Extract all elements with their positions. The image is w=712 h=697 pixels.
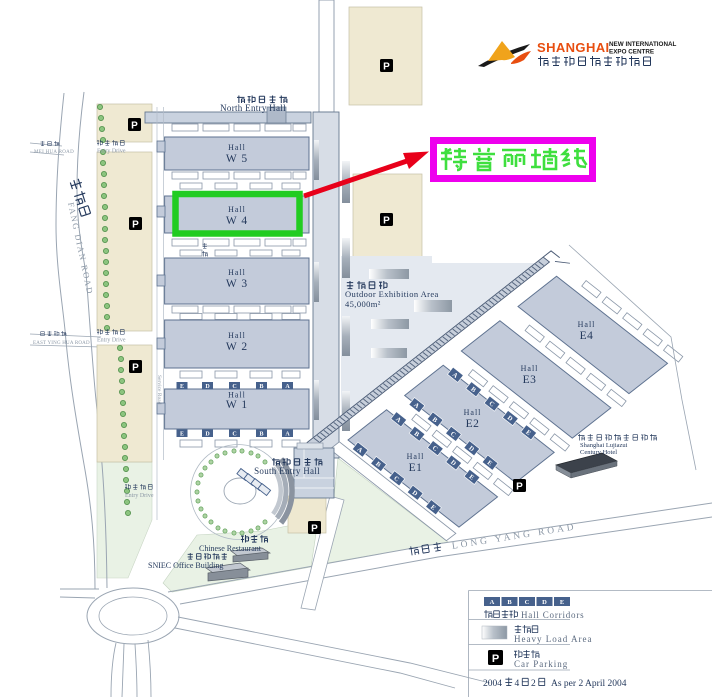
svg-text:Entry Drive: Entry Drive (97, 149, 126, 155)
svg-text:E1: E1 (409, 462, 423, 474)
svg-text:A: A (490, 599, 495, 606)
svg-text:E: E (560, 599, 564, 606)
svg-text:E3: E3 (523, 374, 537, 386)
svg-text:Heavy Load Area: Heavy Load Area (514, 634, 592, 644)
svg-text:South Entry Hall: South Entry Hall (254, 466, 320, 476)
svg-text:D: D (205, 432, 210, 438)
svg-text:A: A (285, 432, 290, 438)
svg-text:Hall: Hall (228, 268, 246, 277)
svg-text:W 2: W 2 (226, 341, 248, 353)
svg-text:Hall: Hall (228, 205, 246, 214)
svg-text:45,000m²: 45,000m² (345, 299, 381, 309)
svg-text:W 3: W 3 (226, 278, 248, 290)
svg-text:Chinese Restaurant: Chinese Restaurant (199, 544, 262, 553)
svg-text:Entry Drive: Entry Drive (97, 338, 126, 344)
svg-text:P: P (492, 653, 499, 665)
svg-text:B: B (259, 432, 263, 438)
svg-text:Hall Corridors: Hall Corridors (521, 610, 584, 620)
svg-text:Outdoor Exhibition Area: Outdoor Exhibition Area (345, 289, 439, 299)
svg-text:B: B (507, 599, 512, 606)
svg-text:C: C (525, 599, 530, 606)
svg-text:EAST YING HUA ROAD: EAST YING HUA ROAD (33, 341, 90, 346)
svg-text:W 1: W 1 (226, 399, 248, 411)
svg-text:Service Road: Service Road (156, 375, 162, 405)
svg-text:D: D (205, 384, 210, 390)
svg-text:W 4: W 4 (226, 215, 248, 227)
svg-text:E: E (180, 384, 184, 390)
svg-text:E: E (180, 432, 184, 438)
svg-text:C: C (232, 384, 236, 390)
svg-text:B: B (259, 384, 263, 390)
svg-text:Century Hotel: Century Hotel (580, 449, 617, 456)
svg-text:W 5: W 5 (226, 153, 248, 165)
svg-text:SHANGHAI: SHANGHAI (537, 40, 610, 55)
svg-text:Hall: Hall (464, 408, 482, 417)
svg-text:NEW INTERNATIONAL: NEW INTERNATIONAL (609, 41, 677, 48)
svg-text:Entry Drive: Entry Drive (125, 493, 154, 499)
svg-text:E2: E2 (466, 418, 480, 430)
svg-text:Hall: Hall (228, 143, 246, 152)
svg-text:As per 2 April 2004: As per 2 April 2004 (551, 679, 627, 689)
svg-text:C: C (232, 432, 236, 438)
svg-text:Hall: Hall (228, 331, 246, 340)
svg-text:D: D (542, 599, 547, 606)
svg-text:Car Parking: Car Parking (514, 659, 568, 669)
svg-text:Hall: Hall (407, 452, 425, 461)
svg-text:2004: 2004 (483, 679, 502, 689)
svg-text:Hall: Hall (521, 364, 539, 373)
svg-text:EXPO CENTRE: EXPO CENTRE (609, 49, 654, 56)
svg-text:SNIEC Office Building: SNIEC Office Building (148, 561, 223, 570)
svg-text:North Entry Hall: North Entry Hall (220, 103, 286, 113)
svg-text:A: A (285, 384, 290, 390)
svg-text:E4: E4 (580, 330, 594, 342)
svg-text:MEI HUA ROAD: MEI HUA ROAD (34, 150, 74, 155)
svg-text:Hall: Hall (578, 320, 596, 329)
svg-text:2: 2 (531, 679, 536, 689)
svg-text:4: 4 (515, 679, 520, 689)
svg-text:Shanghai Lujiazui: Shanghai Lujiazui (580, 442, 628, 449)
